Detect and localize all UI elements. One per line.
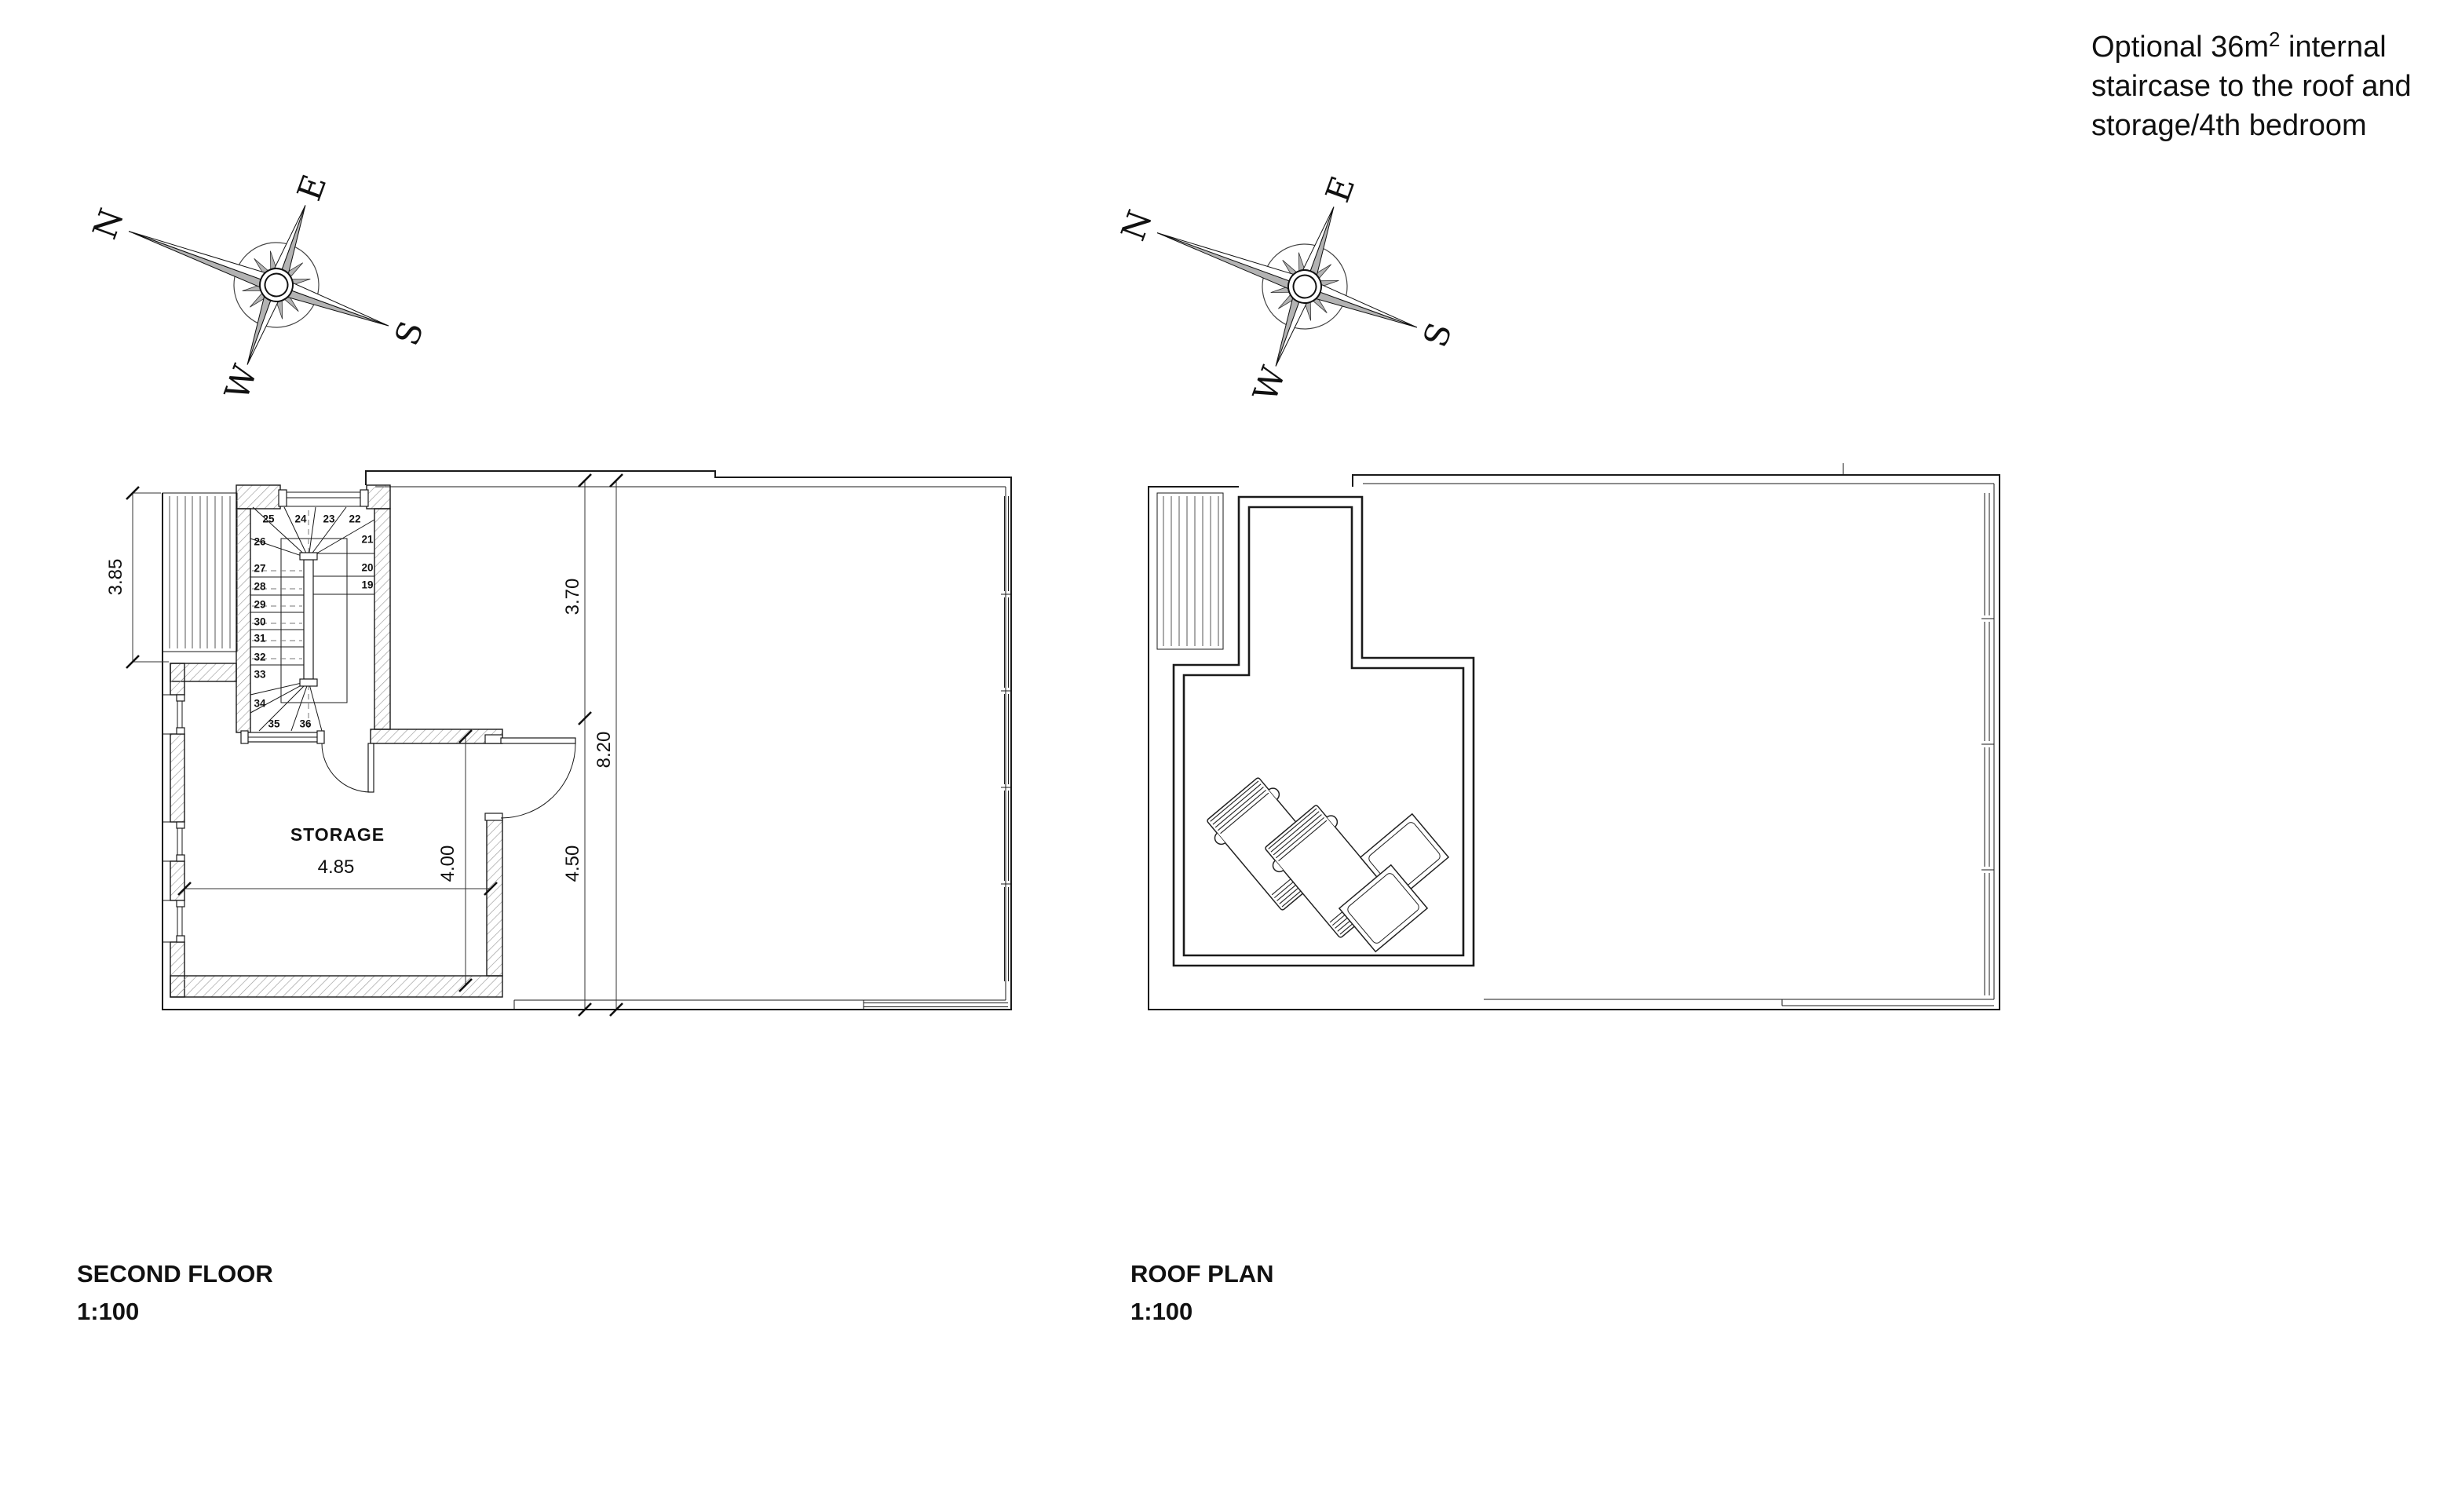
door-storage — [322, 743, 374, 792]
second-floor-title-block: SECOND FLOOR 1:100 — [77, 1260, 273, 1325]
roof-plan — [1149, 463, 2000, 1010]
storage-window — [163, 900, 184, 942]
note-line1-post: internal — [2280, 31, 2386, 64]
compass-south-label: S — [1415, 318, 1459, 352]
deck-area — [1157, 493, 1223, 649]
compass-rose-icon: N E S W — [49, 108, 466, 453]
stair-step-number: 33 — [254, 669, 266, 681]
dimension-right-chain: 3.70 4.50 8.20 — [562, 474, 623, 1016]
note-superscript: 2 — [2269, 27, 2280, 51]
floorplan-drawing: Optional 36m2 internal staircase to the … — [0, 0, 2458, 1512]
staircase: 19 20 21 22 23 24 25 26 27 28 29 30 31 3… — [250, 507, 374, 731]
dim-label: 4.85 — [318, 856, 355, 878]
stair-step-number: 36 — [299, 718, 312, 730]
plan-title: SECOND FLOOR — [77, 1260, 273, 1287]
compass-east-label: E — [1318, 171, 1363, 207]
compass-west-label: W — [217, 360, 265, 405]
stair-step-number: 35 — [268, 718, 280, 730]
stair-step-number: 31 — [254, 633, 266, 645]
stair-step-number: 29 — [254, 599, 265, 611]
stair-step-number: 20 — [361, 562, 373, 574]
stair-step-number: 25 — [262, 513, 275, 525]
compass-east-label: E — [290, 170, 334, 206]
stair-step-number: 24 — [294, 513, 307, 525]
stair-step-number: 19 — [361, 579, 373, 591]
dimension-3-85: 3.85 — [105, 487, 169, 668]
stair-step-number: 26 — [254, 536, 266, 548]
compass-rose-icon: N E S W — [1077, 110, 1495, 455]
stair-step-number: 28 — [254, 581, 266, 593]
stair-step-number: 32 — [254, 652, 265, 663]
compass-north-label: N — [85, 203, 131, 243]
walls — [170, 485, 502, 997]
svg-text:Optional 36m2 internal: Optional 36m2 internal — [2091, 27, 2387, 64]
window-band-bottom — [864, 1000, 1008, 1010]
roof-plan-title-block: ROOF PLAN 1:100 — [1130, 1260, 1274, 1325]
stair-landing-sill — [241, 731, 324, 743]
note-line3: storage/4th bedroom — [2091, 109, 2367, 142]
plan-scale: 1:100 — [1130, 1298, 1192, 1325]
dim-label: 3.70 — [562, 579, 583, 615]
second-floor-plan: 19 20 21 22 23 24 25 26 27 28 29 30 31 3… — [105, 471, 1012, 1016]
window-band-right — [1981, 493, 1994, 995]
storage-window — [163, 695, 184, 734]
stair-step-number: 23 — [323, 513, 335, 525]
door-roof-terrace — [485, 735, 575, 820]
storage-window — [163, 822, 184, 861]
compass-south-label: S — [387, 316, 431, 351]
stair-step-number: 22 — [349, 513, 360, 525]
open-roof-inner-lines — [375, 487, 1006, 1010]
stair-step-number: 34 — [254, 698, 266, 710]
plan-title: ROOF PLAN — [1130, 1260, 1274, 1287]
stair-step-number: 21 — [361, 534, 374, 546]
stair-step-number: 30 — [254, 616, 265, 628]
dim-label: 8.20 — [593, 732, 615, 769]
note-line1-pre: Optional 36m — [2091, 31, 2269, 64]
window-band-right — [1001, 496, 1012, 981]
room-label-storage: STORAGE — [290, 824, 385, 845]
plan-scale: 1:100 — [77, 1298, 139, 1325]
deck-area — [163, 493, 237, 652]
dimension-4-00: 4.00 — [437, 730, 472, 992]
compass-north-label: N — [1113, 205, 1160, 245]
compass-west-label: W — [1245, 361, 1293, 407]
dim-label: 3.85 — [105, 559, 126, 596]
window-band-bottom — [1782, 999, 1994, 1006]
dim-label: 4.50 — [562, 845, 583, 882]
stair-center-wall — [304, 560, 313, 679]
note-text: Optional 36m2 internal staircase to the … — [2091, 27, 2412, 142]
stair-window — [279, 490, 368, 506]
note-line2: staircase to the roof and — [2091, 70, 2412, 103]
stair-step-number: 27 — [254, 563, 265, 575]
dim-label: 4.00 — [437, 845, 458, 882]
